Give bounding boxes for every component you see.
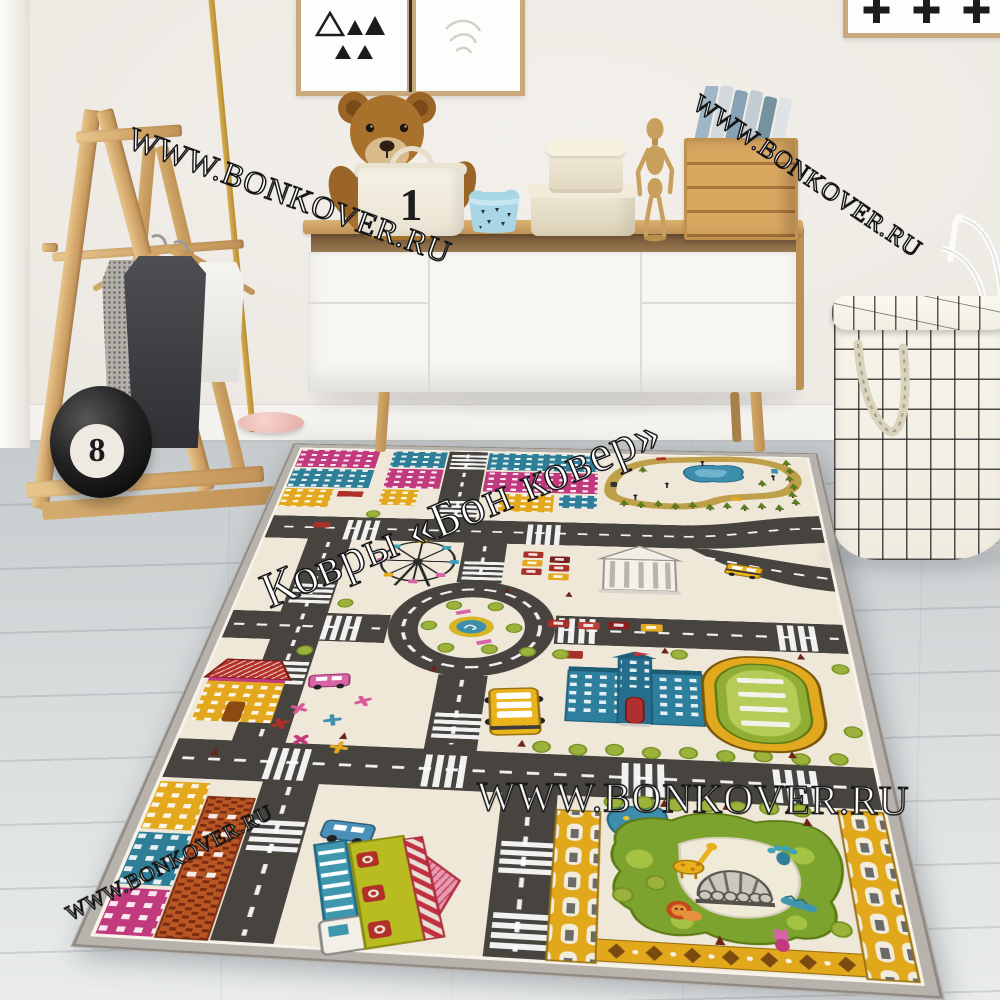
- watermark-url-bottom-center: WWW.BONKOVER.RU: [476, 772, 909, 825]
- wooden-mannequin: [628, 116, 684, 242]
- rug-school-bus: [484, 688, 546, 736]
- sideboard-seam: [640, 252, 642, 392]
- blue-fabric-basket: [465, 186, 523, 236]
- play-rug-design: [70, 443, 945, 1000]
- sideboard-seam: [640, 302, 800, 304]
- play-rug: [70, 443, 945, 1000]
- product-photo: 8: [0, 0, 1000, 1000]
- sideboard-seam: [308, 302, 428, 304]
- laundry-basket-rim: [832, 296, 1000, 330]
- sideboard-side-panel: [796, 226, 804, 390]
- sideboard-seam: [428, 252, 430, 392]
- hat-box-small-lid: [546, 140, 626, 156]
- sideboard-front: [308, 252, 800, 392]
- rope-handle: [840, 330, 940, 450]
